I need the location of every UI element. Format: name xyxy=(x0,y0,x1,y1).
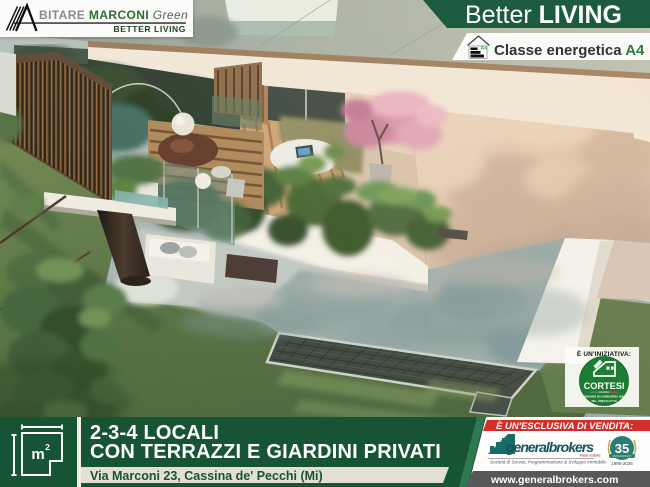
svg-text:A4: A4 xyxy=(481,46,489,52)
svg-text:Società di Servizi, Programmaz: Società di Servizi, Programmazione & Svi… xyxy=(490,460,606,465)
svg-text:Real Estate: Real Estate xyxy=(580,453,601,458)
svg-text:TEL. 0363 91 07 00: TEL. 0363 91 07 00 xyxy=(591,399,617,403)
svg-text:2: 2 xyxy=(45,442,50,452)
svg-text:1990-2025: 1990-2025 xyxy=(611,461,633,466)
svg-text:m: m xyxy=(31,446,44,463)
svg-text:CORTESI: CORTESI xyxy=(584,381,625,391)
svg-text:ANNIVERSARY: ANNIVERSARY xyxy=(612,454,632,458)
